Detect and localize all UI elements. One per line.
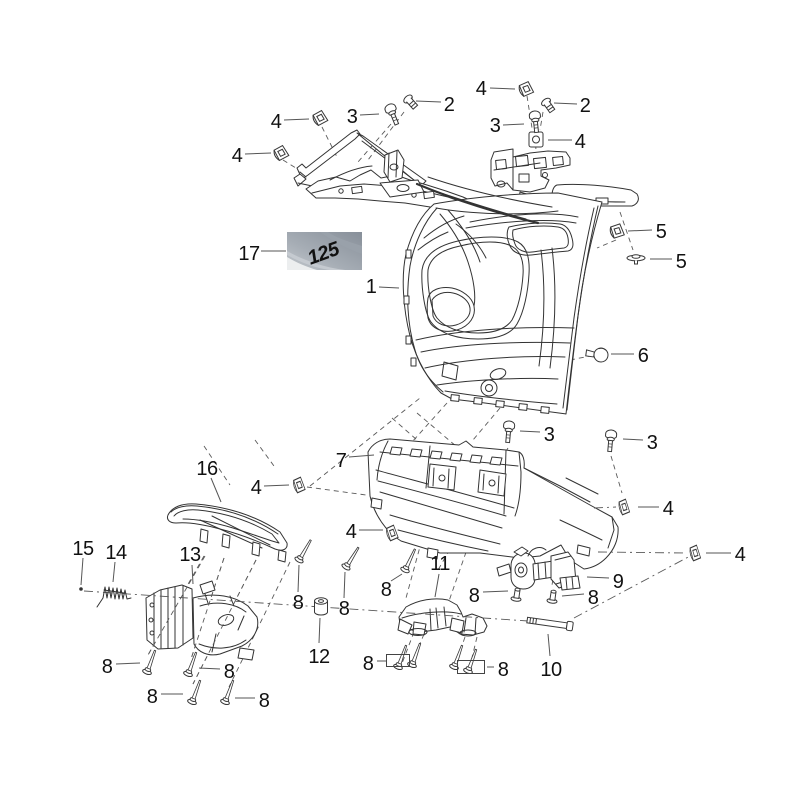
svg-text:8: 8 — [293, 592, 304, 614]
svg-text:8: 8 — [363, 653, 374, 675]
svg-text:8: 8 — [259, 690, 270, 712]
svg-text:7: 7 — [336, 450, 347, 472]
svg-text:6: 6 — [638, 345, 649, 367]
svg-text:4: 4 — [663, 498, 674, 520]
svg-text:4: 4 — [232, 145, 243, 167]
svg-text:16: 16 — [196, 458, 218, 480]
svg-text:4: 4 — [271, 111, 282, 133]
svg-text:3: 3 — [647, 432, 658, 454]
svg-text:14: 14 — [105, 542, 127, 564]
svg-text:4: 4 — [346, 521, 357, 543]
svg-text:15: 15 — [72, 538, 94, 560]
svg-text:17: 17 — [238, 243, 260, 265]
svg-text:5: 5 — [656, 221, 667, 243]
svg-text:4: 4 — [575, 131, 586, 153]
svg-text:8: 8 — [102, 656, 113, 678]
svg-text:2: 2 — [580, 95, 591, 117]
svg-text:1: 1 — [366, 276, 377, 298]
svg-text:5: 5 — [676, 251, 687, 273]
svg-text:10: 10 — [540, 659, 562, 681]
svg-text:3: 3 — [544, 424, 555, 446]
svg-text:12: 12 — [308, 646, 330, 668]
svg-text:4: 4 — [735, 544, 746, 566]
svg-text:8: 8 — [147, 686, 158, 708]
svg-text:3: 3 — [347, 106, 358, 128]
svg-text:2: 2 — [444, 94, 455, 116]
svg-text:8: 8 — [381, 579, 392, 601]
svg-text:9: 9 — [613, 571, 624, 593]
svg-text:4: 4 — [251, 477, 262, 499]
svg-text:8: 8 — [588, 587, 599, 609]
svg-text:13: 13 — [179, 544, 201, 566]
svg-text:8: 8 — [224, 661, 235, 683]
svg-text:3: 3 — [490, 115, 501, 137]
svg-text:8: 8 — [498, 659, 509, 681]
svg-text:8: 8 — [339, 598, 350, 620]
svg-text:11: 11 — [430, 553, 450, 575]
svg-text:8: 8 — [469, 585, 480, 607]
svg-text:4: 4 — [476, 78, 487, 100]
